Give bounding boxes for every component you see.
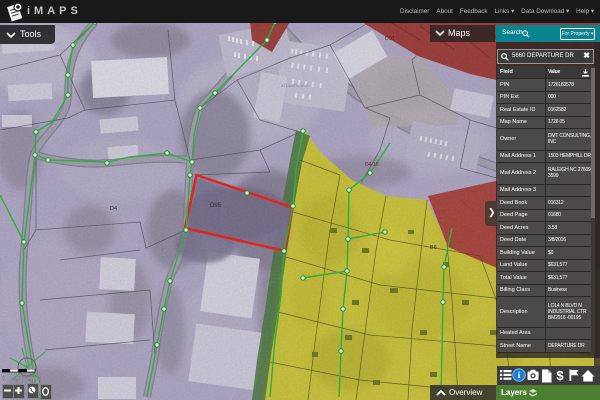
svg-text:D4-16: D4-16 xyxy=(365,162,379,168)
svg-text:ATLANTIC AVE: ATLANTIC AVE xyxy=(281,83,309,88)
svg-text:200m: 200m xyxy=(28,376,42,382)
svg-text:D4: D4 xyxy=(110,206,117,212)
svg-text:B6: B6 xyxy=(430,245,437,251)
svg-text:D95: D95 xyxy=(210,203,222,209)
svg-text:$: $ xyxy=(556,368,564,383)
svg-text:D10: D10 xyxy=(385,36,394,42)
svg-text:100: 100 xyxy=(15,376,24,382)
svg-text:0: 0 xyxy=(2,376,5,382)
